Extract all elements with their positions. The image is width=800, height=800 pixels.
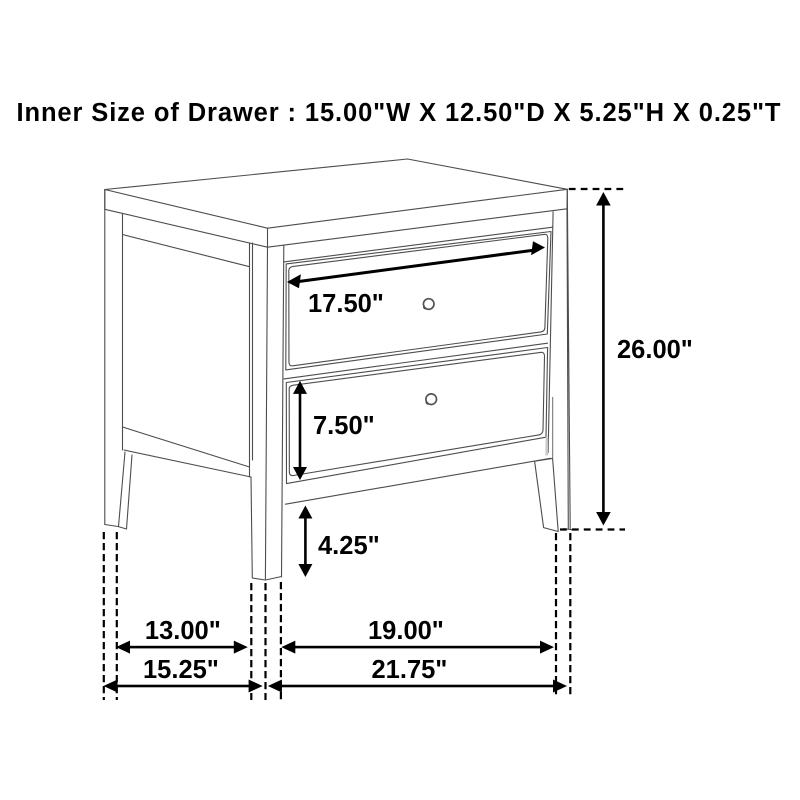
- svg-text:4.25": 4.25": [318, 532, 380, 560]
- svg-text:13.00": 13.00": [145, 617, 221, 645]
- svg-text:19.00": 19.00": [368, 617, 444, 645]
- svg-text:15.25": 15.25": [143, 656, 219, 684]
- svg-text:26.00": 26.00": [617, 336, 693, 364]
- svg-text:Inner Size of Drawer : 15.00"W: Inner Size of Drawer : 15.00"W X 12.50"D…: [17, 99, 781, 127]
- svg-text:17.50": 17.50": [308, 290, 384, 318]
- svg-text:7.50": 7.50": [313, 412, 375, 440]
- svg-text:21.75": 21.75": [372, 656, 448, 684]
